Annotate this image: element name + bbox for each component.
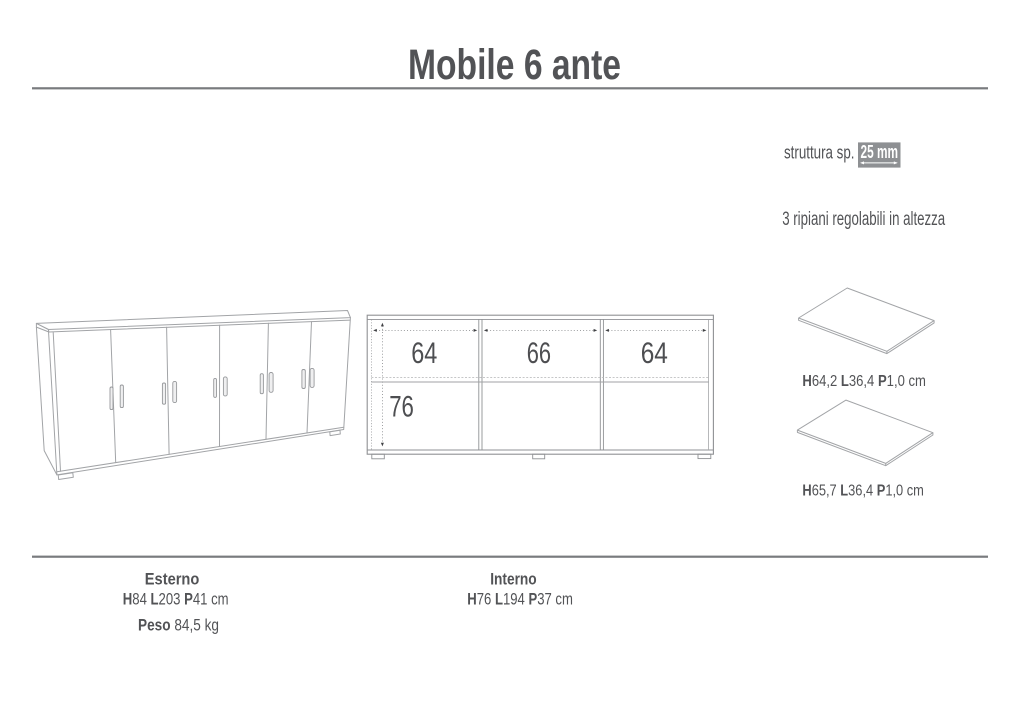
svg-text:76: 76 [389,390,414,423]
svg-text:3 ripiani regolabili in altezz: 3 ripiani regolabili in altezza [782,209,945,230]
svg-text:Mobile 6 ante: Mobile 6 ante [408,42,621,89]
svg-text:Interno: Interno [490,571,537,589]
svg-text:H76 L194 P37 cm: H76 L194 P37 cm [467,590,573,608]
svg-text:H84 L203 P41 cm: H84 L203 P41 cm [123,590,229,608]
svg-text:25 mm: 25 mm [861,141,899,162]
svg-text:H65,7 L36,4 P1,0 cm: H65,7 L36,4 P1,0 cm [802,483,924,500]
svg-text:struttura sp.: struttura sp. [784,143,855,163]
svg-text:64: 64 [641,337,668,370]
svg-text:64: 64 [411,337,437,370]
svg-text:66: 66 [527,337,551,370]
svg-text:H64,2 L36,4 P1,0 cm: H64,2 L36,4 P1,0 cm [802,373,926,390]
svg-text:Peso 84,5 kg: Peso 84,5 kg [138,617,219,635]
svg-text:Esterno: Esterno [145,571,200,589]
